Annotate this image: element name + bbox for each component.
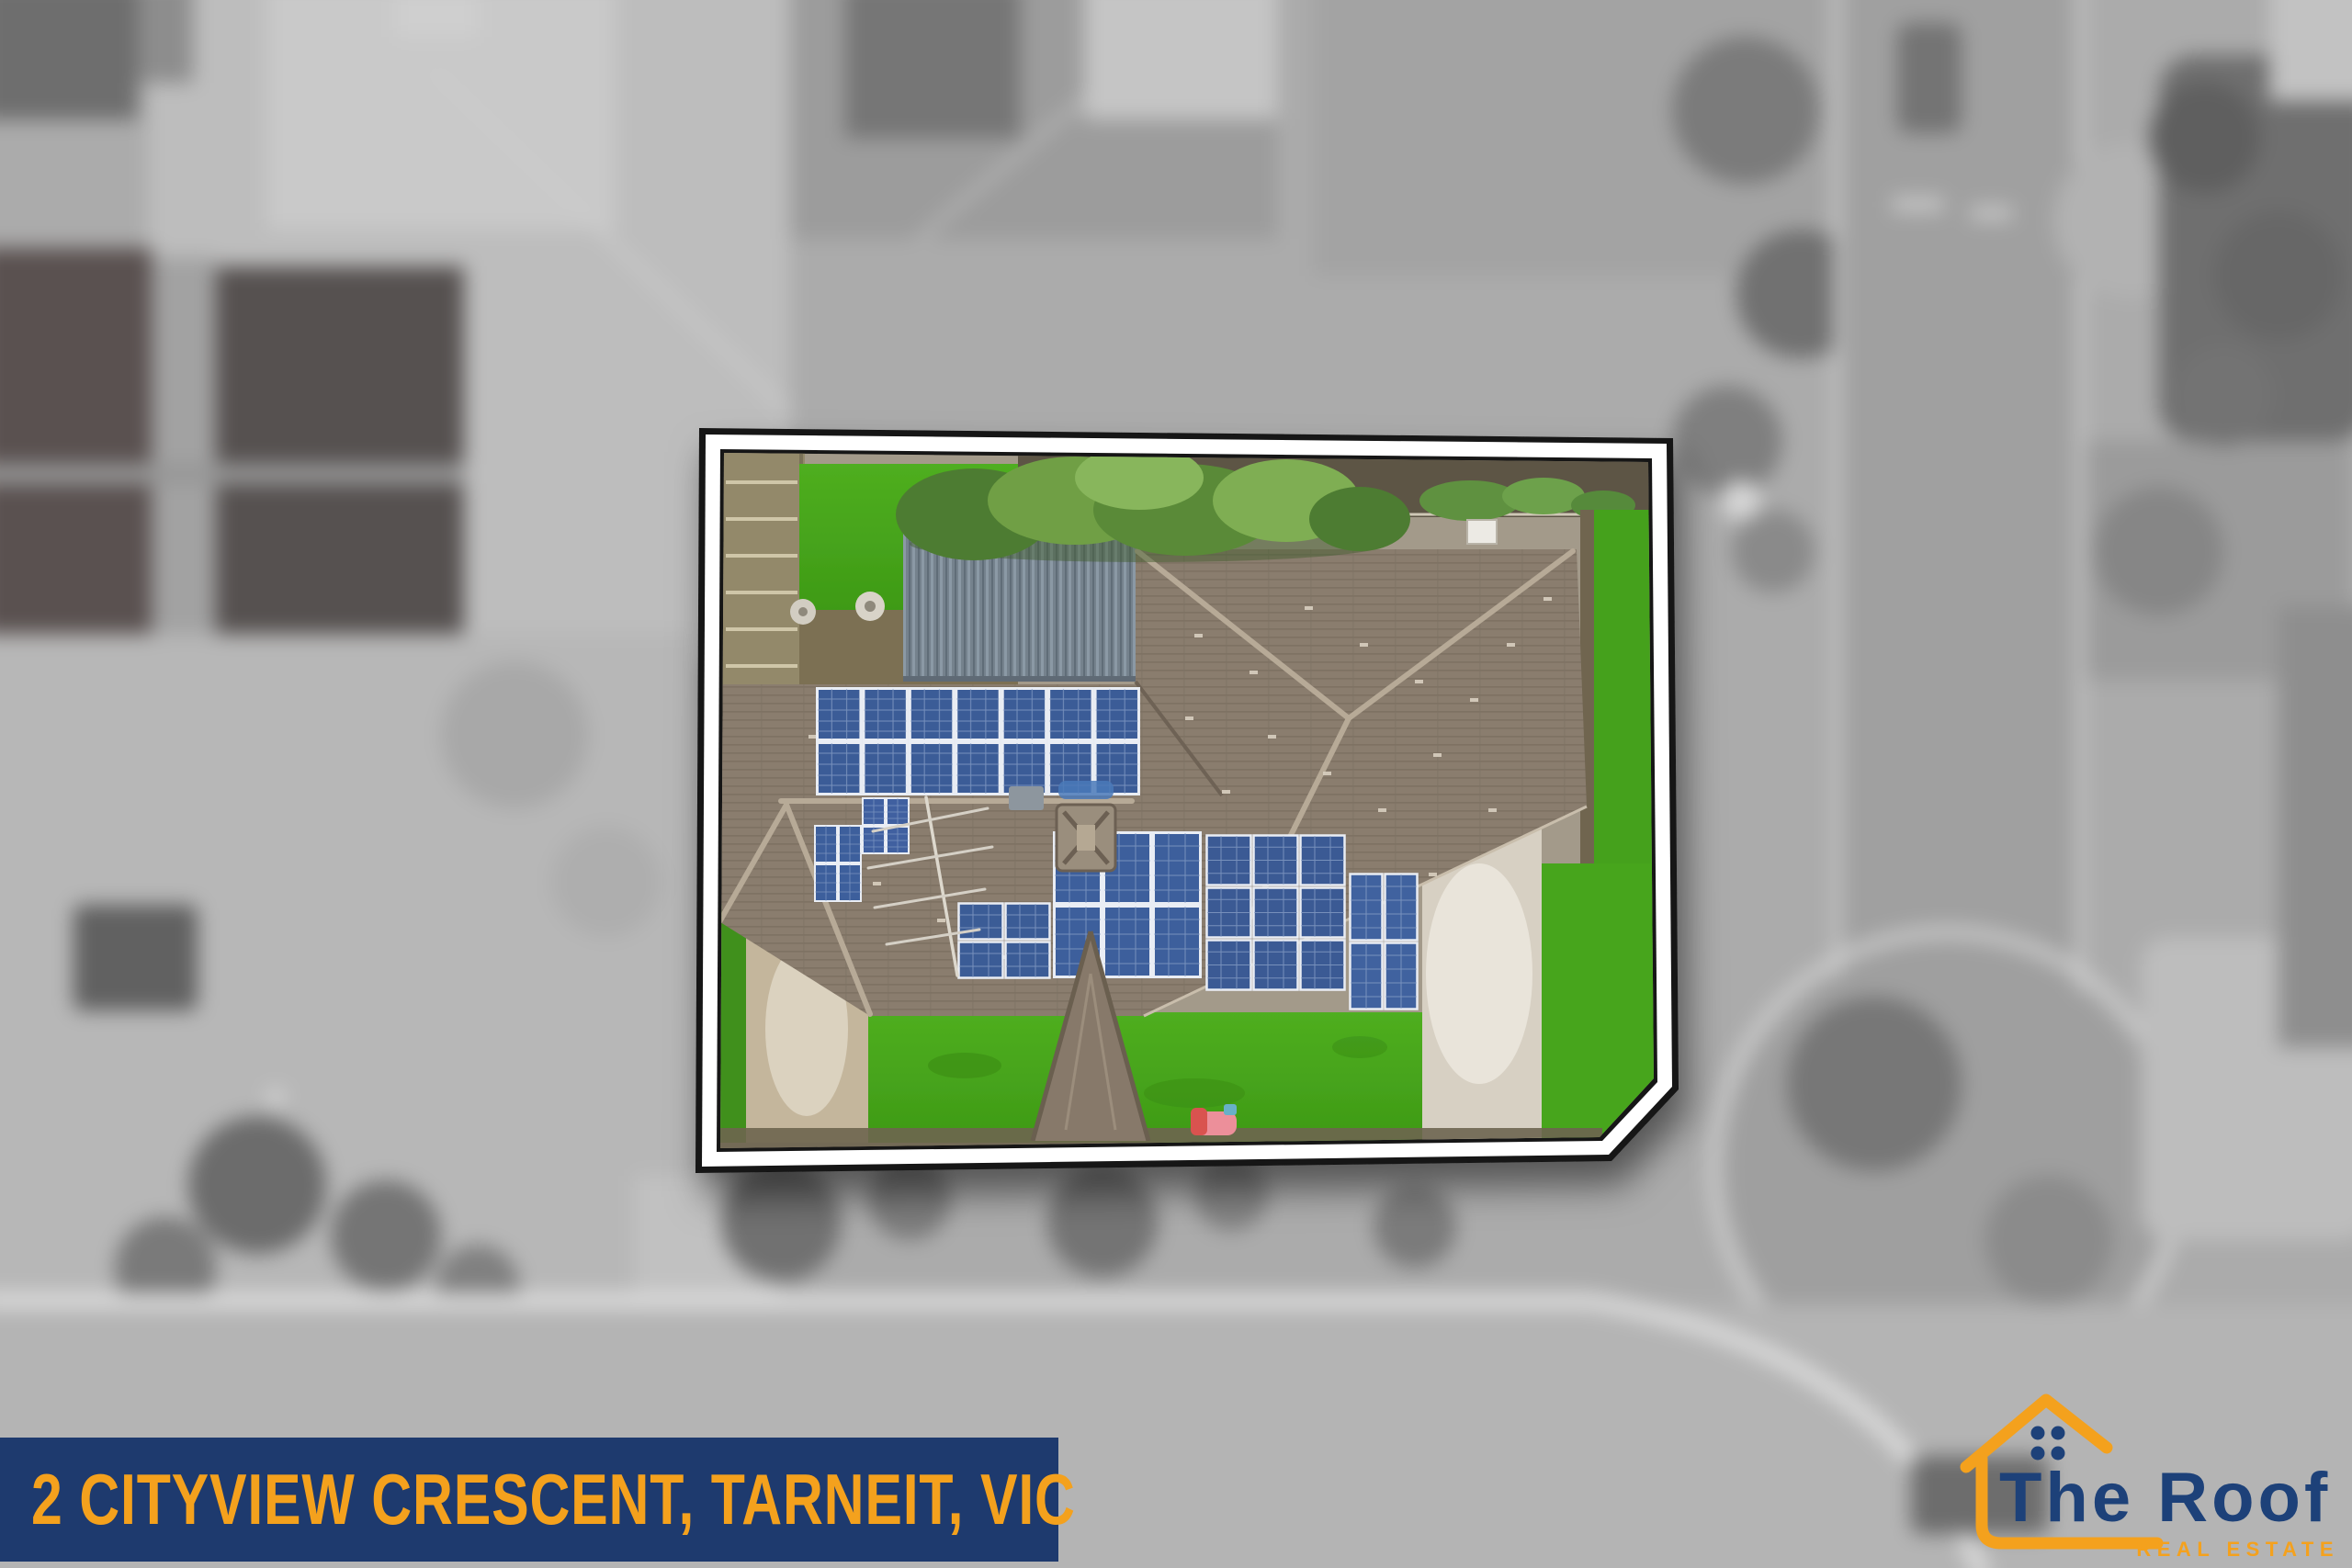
logo-tagline: REAL ESTATE (2136, 1538, 2339, 1561)
window-dots-icon (2031, 1427, 2065, 1461)
real-estate-marketing-image: 2 CITYVIEW CRESCENT, TARNEIT, VIC The Ro… (0, 0, 2352, 1568)
logo-name: The Roof (1999, 1459, 2331, 1537)
agency-logo: The Roof REAL ESTATE (0, 0, 2352, 1568)
